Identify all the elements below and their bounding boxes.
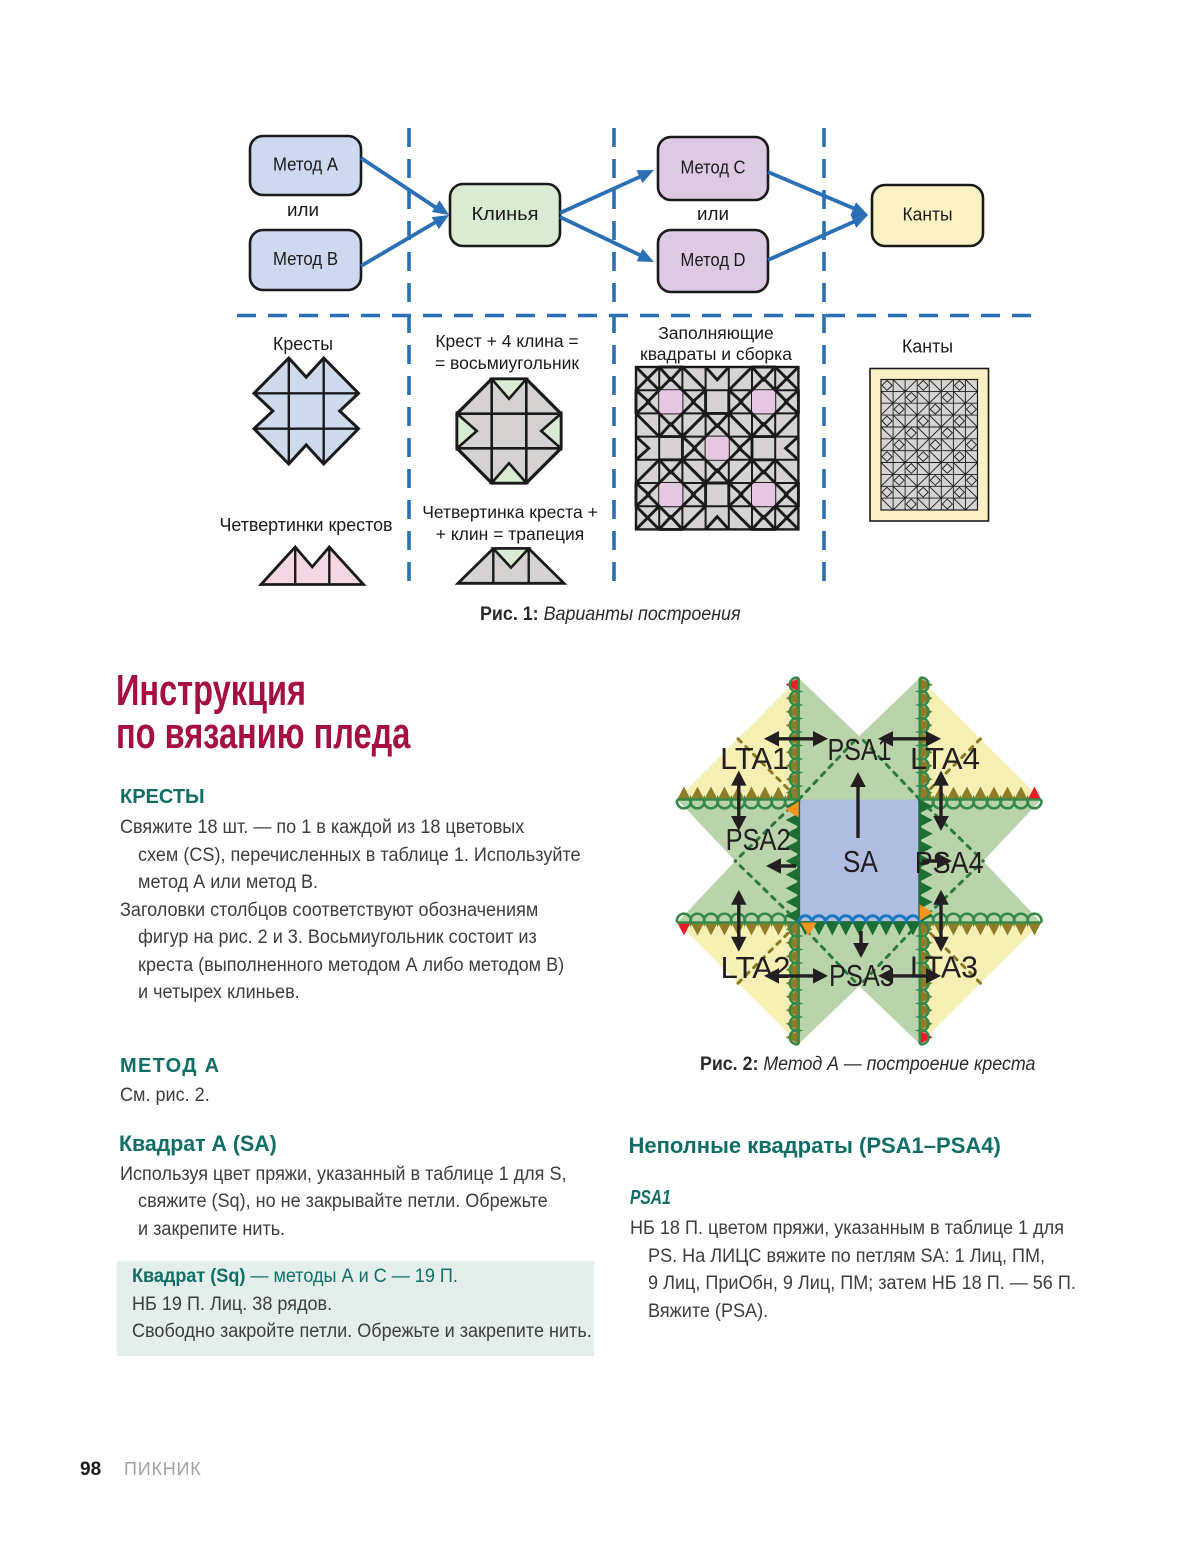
svg-text:PSA2: PSA2 bbox=[726, 822, 791, 857]
svg-text:Метод С: Метод С bbox=[681, 156, 746, 177]
svg-text:PSA3: PSA3 bbox=[829, 958, 894, 993]
svg-text:Клинья: Клинья bbox=[472, 203, 539, 224]
svg-text:+ клин = трапеция: + клин = трапеция bbox=[436, 524, 585, 544]
svg-text:LTA3: LTA3 bbox=[910, 950, 978, 985]
svg-text:Четвертинка креста +: Четвертинка креста + bbox=[422, 502, 598, 522]
svg-text:= восьмиугольник: = восьмиугольник bbox=[435, 353, 579, 373]
svg-text:Канты: Канты bbox=[902, 336, 953, 357]
svg-text:LTA4: LTA4 bbox=[910, 741, 980, 776]
svg-text:Метод А: Метод А bbox=[273, 153, 339, 174]
svg-text:квадраты и сборка: квадраты и сборка bbox=[640, 344, 792, 364]
svg-text:PSA1: PSA1 bbox=[828, 732, 892, 767]
svg-text:LTA2: LTA2 bbox=[721, 950, 791, 985]
svg-text:Четвертинки крестов: Четвертинки крестов bbox=[220, 514, 393, 535]
svg-text:SA: SA bbox=[843, 844, 878, 879]
svg-text:Метод В: Метод В bbox=[273, 248, 338, 269]
svg-text:Крест + 4 клина =: Крест + 4 клина = bbox=[435, 331, 578, 351]
svg-text:Канты: Канты bbox=[903, 203, 953, 224]
svg-text:или: или bbox=[697, 203, 729, 224]
svg-text:или: или bbox=[287, 199, 319, 220]
svg-text:Метод D: Метод D bbox=[681, 249, 746, 270]
svg-text:LTA1: LTA1 bbox=[720, 741, 789, 776]
svg-text:Заполняющие: Заполняющие bbox=[658, 323, 774, 343]
svg-text:PSA4: PSA4 bbox=[915, 845, 984, 880]
svg-text:Кресты: Кресты bbox=[273, 333, 333, 354]
